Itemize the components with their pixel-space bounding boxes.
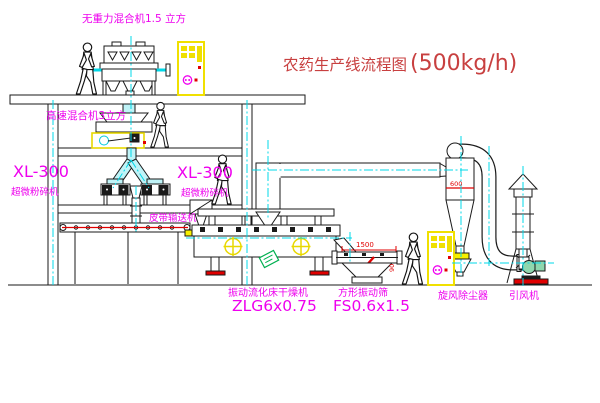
cyclone-body [446, 158, 474, 200]
label-high-speed-mixer: 高速混合机3立方 [46, 109, 126, 122]
dim-sieve-drop: 90 [388, 264, 396, 272]
person-figure-floor2 [151, 102, 169, 147]
pulverizer-left [101, 179, 130, 205]
person-figure-ground [402, 233, 422, 284]
label-pulverizer-left-model: XL-300 [13, 162, 69, 181]
label-pulverizer-left-name: 超微粉碎机 [11, 186, 59, 198]
label-cyclone: 旋风除尘器 [438, 289, 488, 302]
label-belt-conveyor: 皮带输送机 [149, 212, 197, 224]
label-gravityless-mixer: 无重力混合机1.5 立方 [82, 12, 186, 25]
flow-diagram-canvas: 无重力混合机1.5 立方 农药生产线流程图(500kg/h) 高速混合机3立方 … [0, 0, 600, 403]
dryer-deck [192, 225, 340, 236]
label-pulverizer-mid-name: 超微粉碎机 [181, 187, 229, 199]
right-column [242, 104, 252, 285]
label-fan: 引风机 [509, 289, 539, 302]
process-flow-drawing: 无重力混合机1.5 立方 农药生产线流程图(500kg/h) 高速混合机3立方 … [0, 0, 600, 403]
sieve-hopper [342, 263, 392, 277]
sieve-base [352, 277, 382, 283]
label-dryer-model: ZLG6x0.75 [232, 297, 317, 315]
gravityless-mixer [88, 42, 170, 95]
control-cabinet-ground [428, 232, 454, 285]
dryer-foot-pad-left [206, 271, 225, 275]
label-sieve-model: FS0.6x1.5 [333, 297, 410, 315]
dryer-foot-pad-right [310, 271, 329, 275]
dim-sieve-length: 1500 [356, 241, 374, 249]
person-figure-roof [76, 43, 96, 94]
label-pulverizer-mid-model: XL-300 [177, 163, 233, 182]
roof-slab [10, 95, 305, 104]
dryer-body [194, 236, 336, 257]
fan-base-plate [514, 279, 548, 284]
dim-cyclone: 600 [450, 180, 462, 188]
belt-conveyor [60, 223, 190, 284]
fluid-bed-dryer [192, 209, 356, 275]
page-title: 农药生产线流程图(500kg/h) [283, 51, 517, 76]
control-cabinet-roof [178, 42, 204, 95]
